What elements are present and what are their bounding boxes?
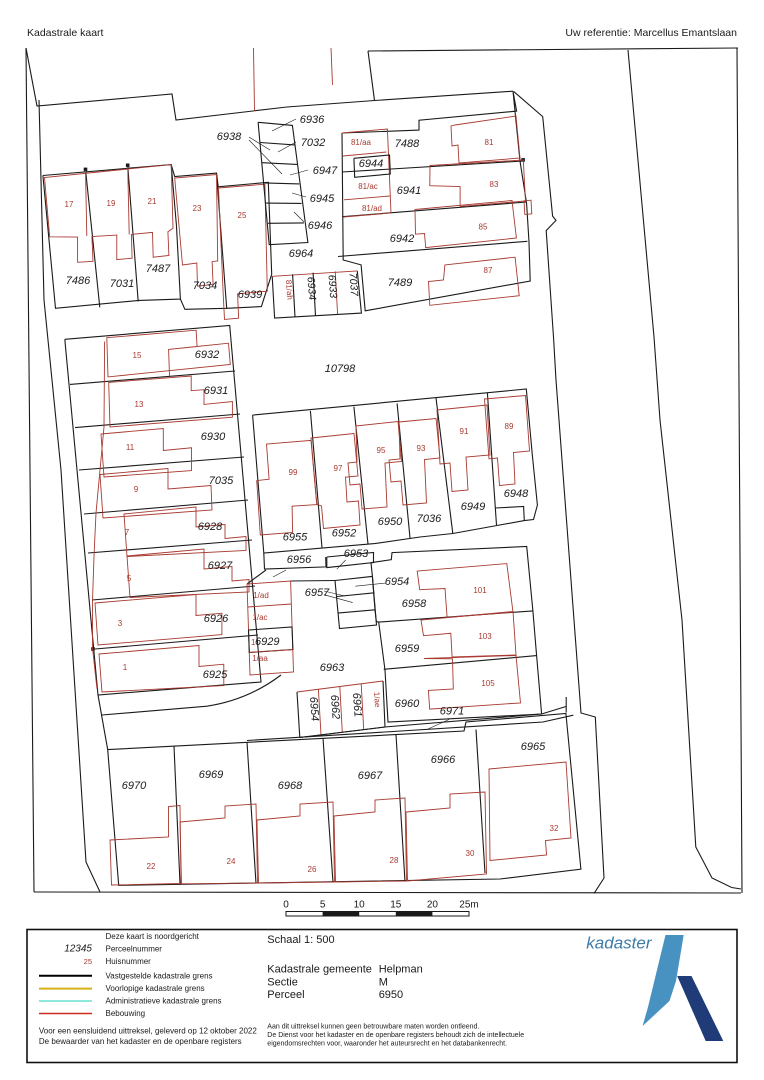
svg-text:Sectie: Sectie: [267, 977, 298, 989]
svg-text:26: 26: [308, 865, 317, 874]
svg-text:kadaster: kadaster: [586, 934, 653, 953]
svg-text:6957: 6957: [305, 587, 330, 599]
svg-text:6954: 6954: [385, 576, 409, 588]
svg-text:93: 93: [417, 444, 426, 453]
svg-text:15: 15: [390, 900, 402, 911]
svg-text:103: 103: [478, 632, 492, 641]
svg-text:7489: 7489: [388, 277, 412, 289]
svg-text:6933: 6933: [326, 274, 340, 298]
svg-text:6958: 6958: [402, 598, 427, 610]
svg-text:6950: 6950: [379, 989, 403, 1001]
svg-text:6960: 6960: [395, 698, 420, 710]
svg-text:Bebouwing: Bebouwing: [106, 1009, 146, 1018]
svg-text:83: 83: [490, 180, 499, 189]
svg-text:32: 32: [550, 824, 559, 833]
svg-text:6955: 6955: [283, 532, 308, 544]
svg-text:Aan dit uittreksel kunnen geen: Aan dit uittreksel kunnen geen betrouwba…: [267, 1024, 479, 1031]
svg-text:6968: 6968: [278, 780, 303, 792]
svg-text:6946: 6946: [308, 220, 333, 232]
svg-text:6929: 6929: [255, 636, 279, 648]
svg-text:89: 89: [505, 422, 514, 431]
svg-text:101: 101: [473, 586, 487, 595]
svg-text:Huisnummer: Huisnummer: [106, 957, 152, 966]
svg-text:7487: 7487: [146, 263, 171, 275]
svg-text:7035: 7035: [209, 475, 234, 487]
svg-text:De bewaarder van het kadaster: De bewaarder van het kadaster en de open…: [39, 1037, 242, 1046]
svg-text:17: 17: [65, 200, 74, 209]
svg-text:22: 22: [147, 862, 156, 871]
svg-text:Kadastrale gemeente: Kadastrale gemeente: [267, 964, 372, 976]
svg-text:6930: 6930: [201, 431, 226, 443]
svg-text:6926: 6926: [204, 613, 229, 625]
svg-text:21: 21: [148, 197, 157, 206]
svg-text:81/ac: 81/ac: [358, 182, 378, 191]
svg-text:6934: 6934: [305, 276, 319, 300]
svg-text:6950: 6950: [378, 516, 403, 528]
svg-text:1/ac: 1/ac: [252, 613, 267, 622]
svg-text:6949: 6949: [461, 501, 485, 513]
svg-text:10798: 10798: [325, 363, 356, 375]
svg-text:7486: 7486: [66, 275, 91, 287]
svg-text:0: 0: [283, 900, 289, 911]
svg-text:6941: 6941: [397, 185, 421, 197]
svg-text:Vastgestelde kadastrale grens: Vastgestelde kadastrale grens: [106, 972, 213, 981]
svg-text:25: 25: [238, 211, 247, 220]
svg-text:6969: 6969: [199, 769, 223, 781]
svg-text:6938: 6938: [217, 131, 242, 143]
svg-text:13: 13: [135, 400, 144, 409]
svg-text:7488: 7488: [395, 138, 420, 150]
svg-text:M: M: [379, 977, 388, 989]
svg-text:Perceelnummer: Perceelnummer: [106, 945, 163, 954]
svg-text:85: 85: [479, 223, 488, 232]
svg-text:105: 105: [481, 679, 495, 688]
svg-text:1/ae: 1/ae: [372, 692, 382, 709]
svg-text:6948: 6948: [504, 488, 529, 500]
svg-text:6947: 6947: [313, 165, 338, 177]
svg-text:Administratieve kadastrale gre: Administratieve kadastrale grens: [106, 997, 222, 1006]
svg-text:20: 20: [427, 900, 439, 911]
svg-text:Perceel: Perceel: [267, 989, 304, 1001]
svg-text:6954: 6954: [307, 696, 321, 721]
svg-text:24: 24: [227, 857, 236, 866]
svg-text:6928: 6928: [198, 521, 223, 533]
svg-text:28: 28: [390, 856, 399, 865]
svg-text:6952: 6952: [332, 528, 356, 540]
svg-text:81/aa: 81/aa: [351, 138, 372, 147]
svg-text:25m: 25m: [459, 900, 478, 911]
svg-text:Voorlopige kadastrale grens: Voorlopige kadastrale grens: [106, 984, 205, 993]
svg-text:6959: 6959: [395, 643, 419, 655]
svg-text:Voor een eensluidend uittrekse: Voor een eensluidend uittreksel, gelever…: [39, 1027, 257, 1036]
svg-text:6965: 6965: [521, 741, 546, 753]
svg-text:12345: 12345: [64, 944, 92, 955]
svg-text:15: 15: [133, 351, 142, 360]
svg-text:1/ad: 1/ad: [253, 591, 269, 600]
svg-text:6944: 6944: [359, 158, 383, 170]
svg-text:25: 25: [84, 957, 92, 966]
svg-text:81/ah: 81/ah: [284, 280, 294, 301]
svg-text:1/aa: 1/aa: [252, 654, 268, 663]
svg-text:7034: 7034: [193, 280, 217, 292]
svg-text:87: 87: [484, 266, 493, 275]
svg-text:6967: 6967: [358, 770, 383, 782]
svg-text:9: 9: [134, 485, 139, 494]
svg-text:Schaal 1: 500: Schaal 1: 500: [267, 934, 334, 946]
svg-text:6942: 6942: [390, 233, 414, 245]
svg-text:6964: 6964: [289, 248, 313, 260]
svg-text:6971: 6971: [440, 706, 464, 718]
svg-text:19: 19: [107, 199, 116, 208]
svg-text:6927: 6927: [208, 560, 233, 572]
svg-text:eigendomsrechten voor, waarond: eigendomsrechten voor, waaronder het aut…: [267, 1041, 507, 1048]
svg-text:6966: 6966: [431, 754, 456, 766]
svg-text:7031: 7031: [110, 278, 134, 290]
svg-text:6925: 6925: [203, 669, 228, 681]
svg-text:6945: 6945: [310, 193, 335, 205]
svg-text:99: 99: [289, 468, 298, 477]
svg-text:10: 10: [354, 900, 366, 911]
svg-text:3: 3: [118, 619, 123, 628]
svg-text:Kadastrale kaart: Kadastrale kaart: [27, 27, 104, 39]
svg-text:6931: 6931: [204, 385, 228, 397]
svg-text:30: 30: [466, 849, 475, 858]
svg-text:Uw referentie: Marcellus Emant: Uw referentie: Marcellus Emantslaan: [565, 27, 737, 39]
svg-text:23: 23: [193, 204, 202, 213]
svg-text:95: 95: [377, 446, 386, 455]
svg-text:Helpman: Helpman: [379, 964, 423, 976]
svg-text:6939: 6939: [238, 289, 262, 301]
svg-text:1: 1: [123, 663, 128, 672]
svg-text:6953: 6953: [344, 548, 369, 560]
svg-text:5: 5: [320, 900, 326, 911]
svg-text:5: 5: [127, 574, 132, 583]
svg-text:6970: 6970: [122, 780, 147, 792]
svg-text:81/ad: 81/ad: [362, 204, 382, 213]
svg-text:7: 7: [125, 528, 130, 537]
svg-text:6956: 6956: [287, 554, 312, 566]
svg-text:6936: 6936: [300, 114, 325, 126]
svg-text:97: 97: [334, 464, 343, 473]
svg-text:7032: 7032: [301, 137, 325, 149]
svg-text:11: 11: [126, 443, 135, 452]
svg-text:De Dienst voor het kadaster en: De Dienst voor het kadaster en de openba…: [267, 1032, 524, 1039]
svg-text:6962: 6962: [328, 694, 342, 719]
svg-text:6932: 6932: [195, 349, 219, 361]
svg-text:6961: 6961: [350, 692, 364, 717]
svg-text:91: 91: [460, 427, 469, 436]
svg-text:7037: 7037: [347, 272, 361, 297]
svg-text:7036: 7036: [417, 513, 442, 525]
svg-text:81: 81: [485, 138, 494, 147]
svg-text:Deze kaart is noordgericht: Deze kaart is noordgericht: [106, 932, 200, 941]
svg-text:6963: 6963: [320, 662, 345, 674]
